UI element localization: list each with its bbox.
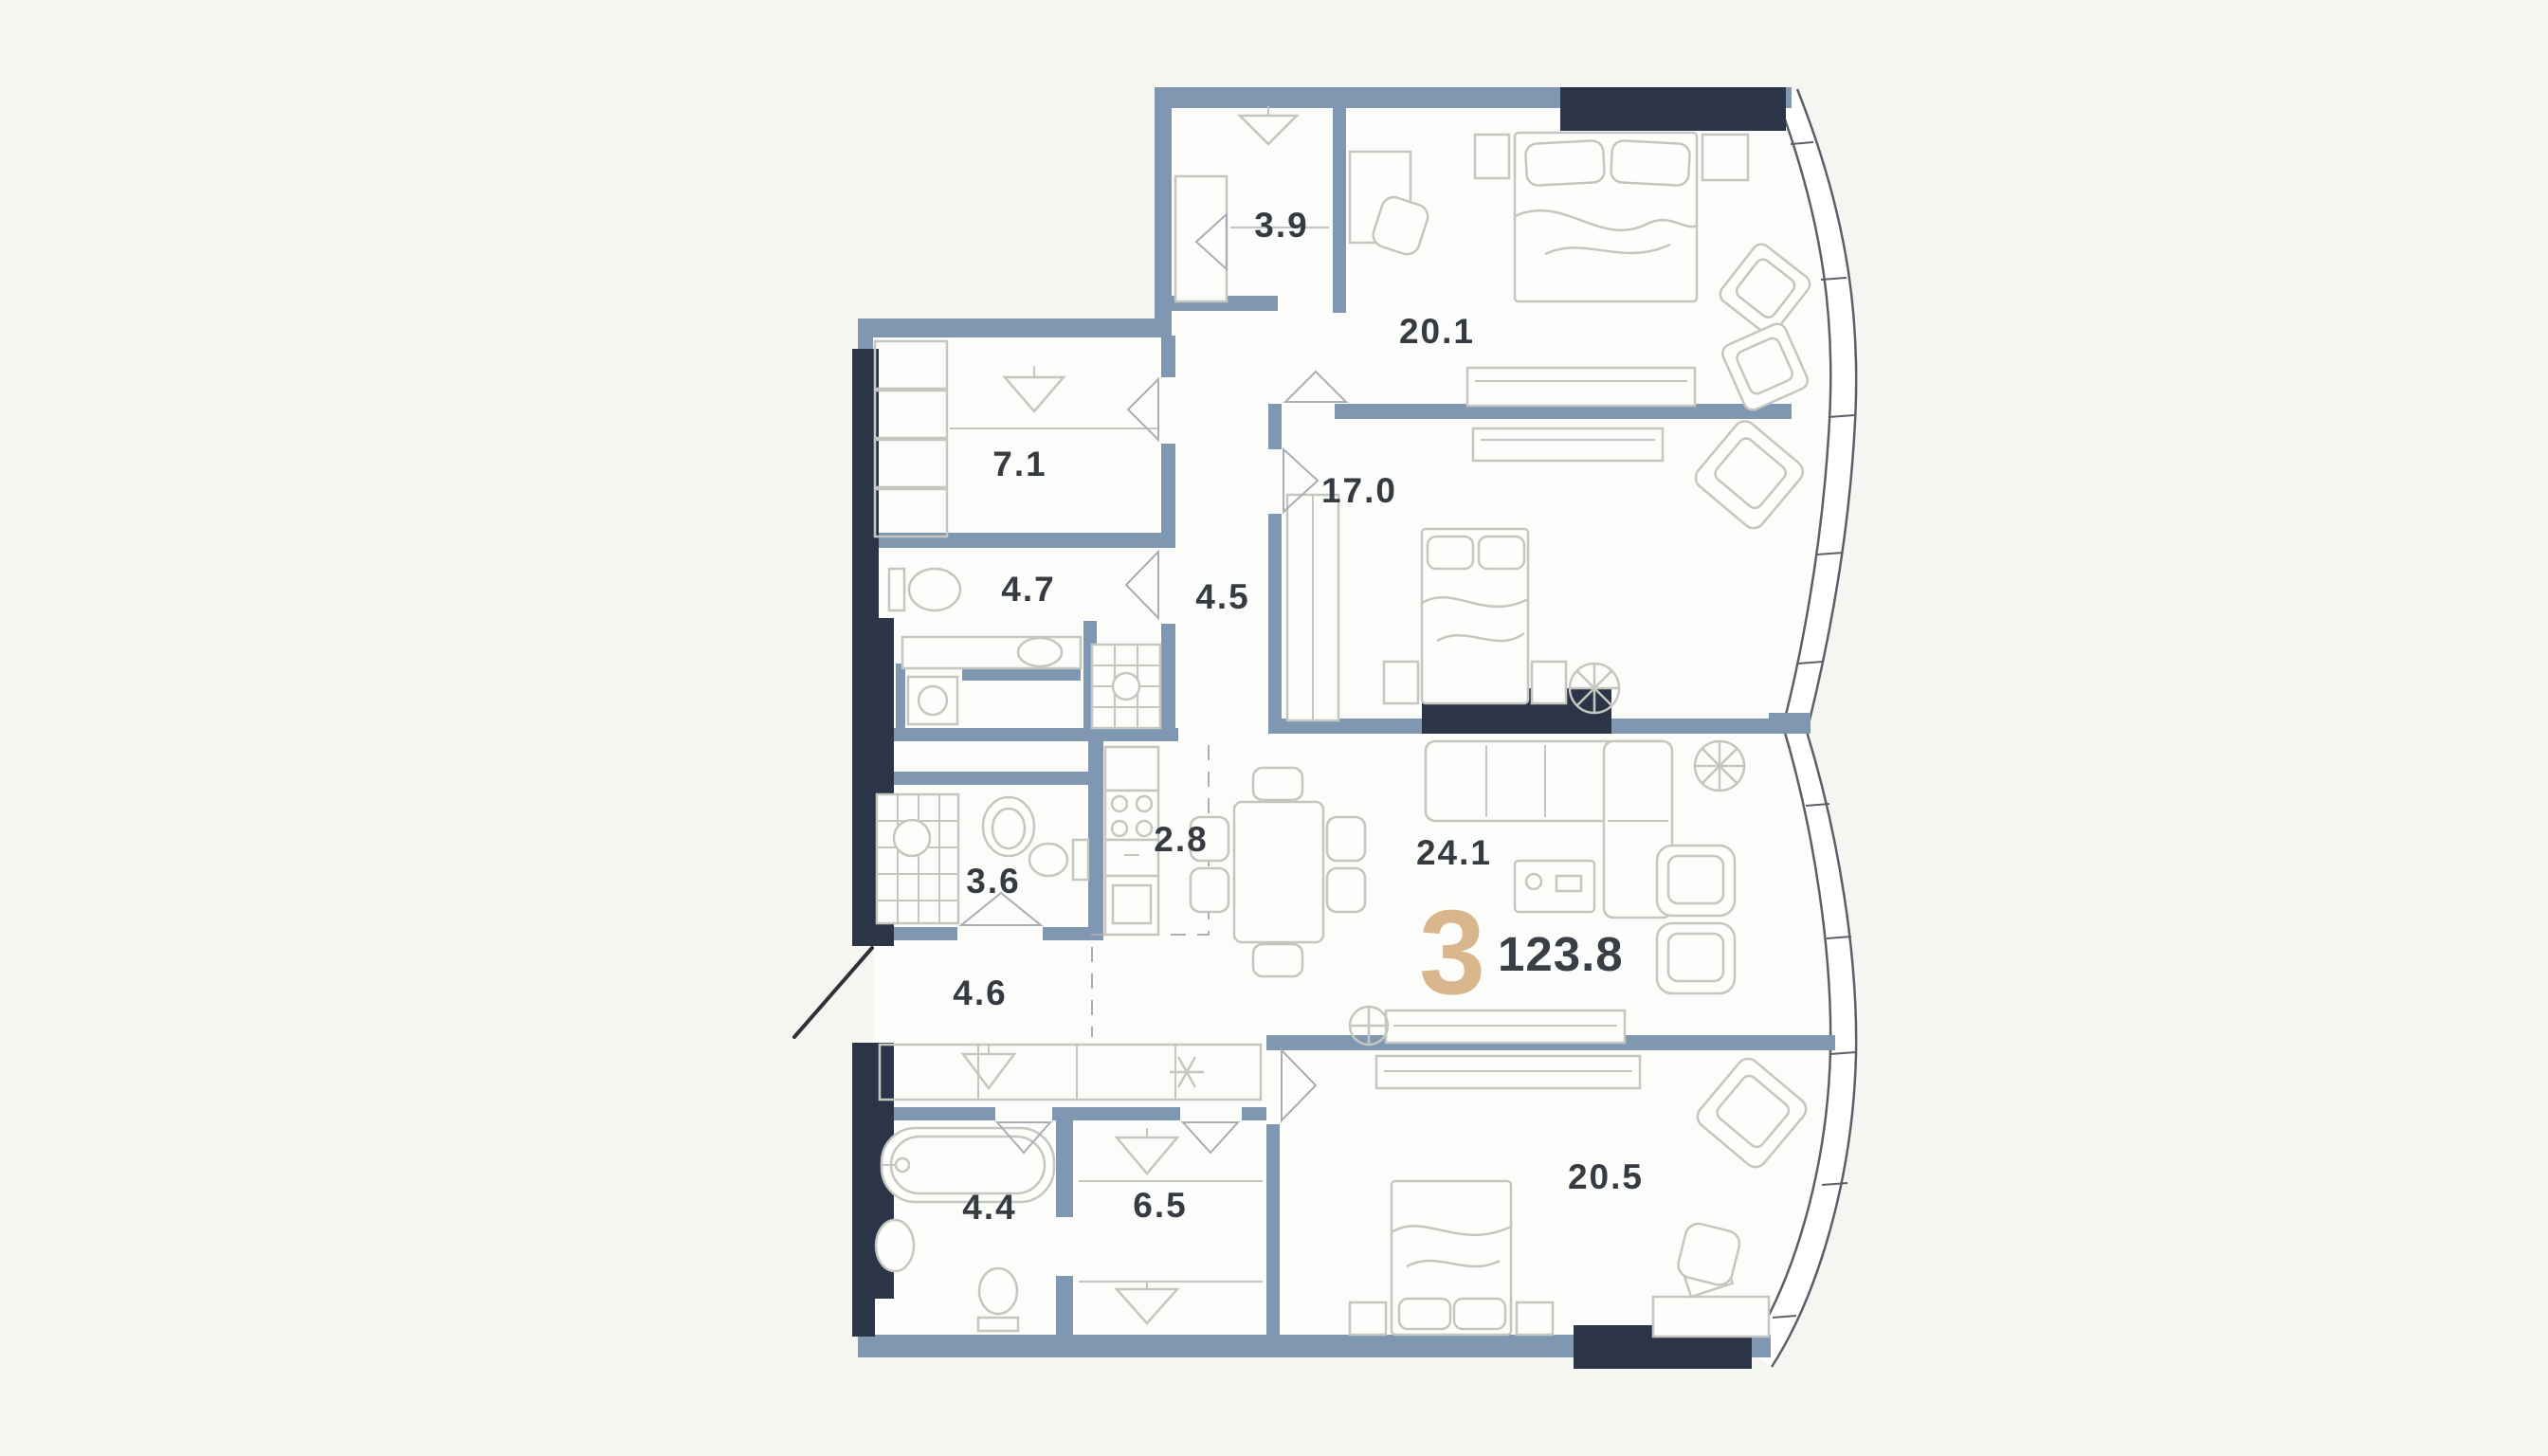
area-label-wardrobe-6-5: 6.5 — [1133, 1186, 1187, 1225]
area-label-bedroom-20-1: 20.1 — [1399, 312, 1475, 351]
sink-3-6 — [983, 797, 1034, 856]
plant-17-0 — [1570, 664, 1619, 713]
shower-4-7 — [1092, 645, 1160, 728]
area-label-kitchen-2-8: 2.8 — [1154, 820, 1208, 859]
toilet-3-6 — [1029, 844, 1067, 876]
area-label-closet-7-1: 7.1 — [992, 445, 1046, 483]
furniture-kitchen-2-8 — [1105, 747, 1158, 935]
plant-24-1 — [1695, 741, 1744, 791]
total-area-number: 123.8 — [1498, 927, 1624, 981]
built-in-wardrobe-20-1 — [1560, 87, 1786, 131]
area-label-bedroom-20-5: 20.5 — [1568, 1157, 1644, 1196]
desk-chair-20-5 — [1676, 1221, 1742, 1287]
area-label-bedroom-17-0: 17.0 — [1321, 471, 1397, 510]
rooms-count-number: 3 — [1419, 885, 1485, 1019]
plant-24-1-b — [1350, 1007, 1388, 1045]
area-label-living-24-1: 24.1 — [1416, 833, 1492, 872]
tv-console-20-1 — [1467, 368, 1695, 406]
toilet-4-4 — [979, 1268, 1017, 1314]
area-label-bathroom-4-7: 4.7 — [1001, 570, 1055, 609]
toilet-4-7 — [909, 569, 960, 610]
entrance-door-swing — [794, 948, 872, 1037]
floorplan-svg: 3.9 20.1 7.1 4.7 4.5 17.0 2.8 3.6 24.1 4… — [0, 0, 2548, 1456]
sink-4-4 — [876, 1220, 914, 1271]
shower-3-6 — [877, 794, 958, 923]
area-label-hallway-4-6: 4.6 — [953, 974, 1007, 1012]
tv-console-17-0 — [1473, 428, 1663, 461]
area-label-hallway-4-5: 4.5 — [1195, 577, 1249, 616]
area-label-wardrobe-3-9: 3.9 — [1254, 206, 1308, 245]
floorplan-page: 3.9 20.1 7.1 4.7 4.5 17.0 2.8 3.6 24.1 4… — [0, 0, 2548, 1456]
area-label-bathroom-4-4: 4.4 — [962, 1188, 1016, 1227]
washer-4-7 — [908, 677, 957, 724]
area-label-bathroom-3-6: 3.6 — [966, 862, 1020, 901]
desk-20-5 — [1653, 1297, 1769, 1337]
cabinet-3-9 — [1175, 176, 1227, 301]
